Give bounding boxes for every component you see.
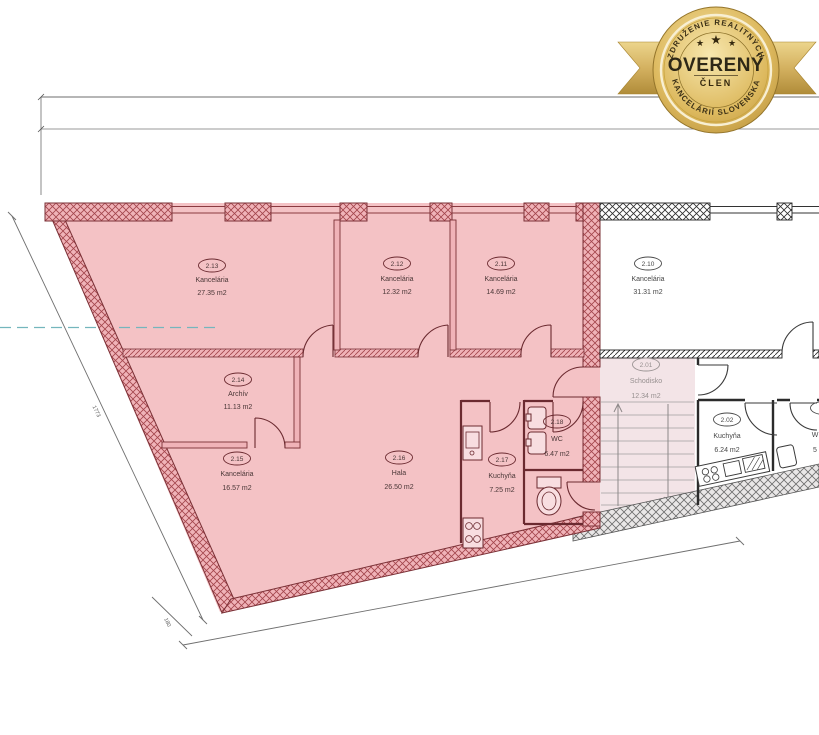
certification-badge: ZDRUŽENIE REALITNÝCH KANCELÁRIÍ SLOVENSK… [618, 7, 816, 133]
svg-text:2.14: 2.14 [232, 377, 245, 384]
svg-text:14.69 m2: 14.69 m2 [486, 289, 515, 296]
svg-text:Kuchyňa: Kuchyňa [488, 473, 515, 480]
wall-archive-right [294, 357, 300, 448]
svg-text:Kancelária: Kancelária [631, 276, 664, 283]
dimension-label-left: 1773 [91, 405, 102, 419]
svg-text:2.11: 2.11 [495, 261, 508, 268]
dimension-label-left-small: 180 [162, 617, 171, 628]
svg-text:26.50 m2: 26.50 m2 [384, 484, 413, 491]
wall-archive-bottom-b [285, 442, 300, 448]
wall-office-divider-2 [450, 220, 456, 350]
svg-text:2.17: 2.17 [496, 457, 509, 464]
svg-text:2.12: 2.12 [391, 261, 404, 268]
svg-text:Kuchyňa: Kuchyňa [713, 433, 740, 440]
stove-fixture-kitchen-217 [463, 518, 483, 548]
svg-text:Hala: Hala [392, 470, 407, 477]
svg-text:Kancelária: Kancelária [484, 276, 517, 283]
svg-text:★: ★ [728, 38, 736, 48]
badge-seal: ZDRUŽENIE REALITNÝCH KANCELÁRIÍ SLOVENSK… [653, 7, 779, 133]
badge-member-label: ČLEN [700, 77, 733, 88]
svg-text:Kancelária: Kancelária [195, 277, 228, 284]
svg-text:2.02: 2.02 [721, 417, 734, 424]
toilet-fixture [537, 477, 561, 515]
svg-text:2.15: 2.15 [231, 456, 244, 463]
sink-fixture-kitchen-217 [463, 426, 482, 460]
floorplan-page: 2.13 Kancelária 27.35 m2 2.12 Kancelária… [0, 0, 819, 735]
svg-text:12.32 m2: 12.32 m2 [382, 289, 411, 296]
svg-text:Schodisko: Schodisko [630, 378, 662, 385]
svg-text:2.13: 2.13 [206, 263, 219, 270]
floorplan-canvas: 2.13 Kancelária 27.35 m2 2.12 Kancelária… [0, 0, 819, 735]
svg-text:6.47 m2: 6.47 m2 [544, 451, 569, 458]
sink-fixture-right [776, 444, 797, 468]
badge-title: OVERENÝ [668, 54, 764, 76]
wall-office-divider-1 [334, 220, 340, 350]
svg-text:★: ★ [710, 33, 721, 47]
floor-plan: 2.13 Kancelária 27.35 m2 2.12 Kancelária… [0, 203, 819, 649]
svg-text:5: 5 [813, 447, 817, 454]
svg-text:Kancelária: Kancelária [220, 471, 253, 478]
svg-text:16.57 m2: 16.57 m2 [222, 485, 251, 492]
svg-text:7.25 m2: 7.25 m2 [489, 487, 514, 494]
svg-text:Archív: Archív [228, 391, 248, 398]
svg-text:2.16: 2.16 [393, 455, 406, 462]
svg-text:12.34 m2: 12.34 m2 [631, 393, 660, 400]
svg-text:Kancelária: Kancelária [380, 276, 413, 283]
svg-text:2.01: 2.01 [640, 362, 653, 369]
svg-text:2.18: 2.18 [551, 419, 564, 426]
svg-text:2.10: 2.10 [642, 261, 655, 268]
svg-text:31.31 m2: 31.31 m2 [633, 289, 662, 296]
highlighted-area [45, 203, 600, 612]
svg-text:6.24 m2: 6.24 m2 [714, 447, 739, 454]
svg-text:W: W [812, 432, 819, 439]
svg-text:27.35 m2: 27.35 m2 [197, 290, 226, 297]
wall-archive-bottom-a [162, 442, 247, 448]
svg-text:★: ★ [696, 38, 704, 48]
svg-text:11.13 m2: 11.13 m2 [224, 404, 253, 411]
dimension-line-left-small [152, 597, 192, 636]
svg-text:WC: WC [551, 436, 563, 443]
